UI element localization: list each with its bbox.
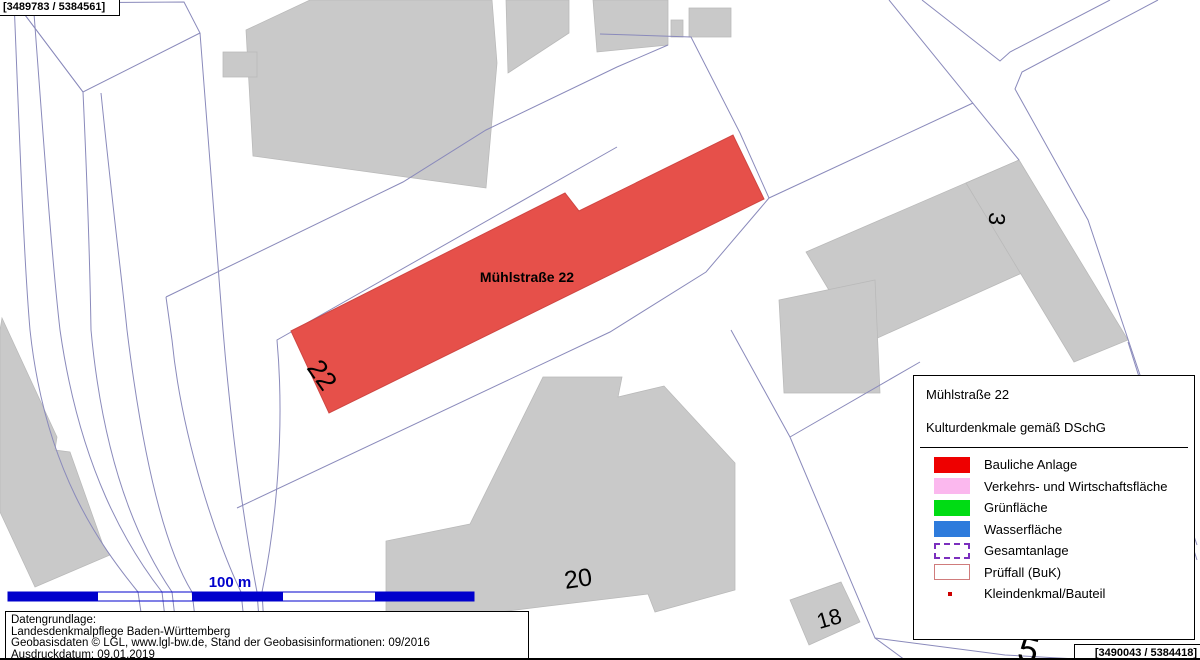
dot-swatch-icon <box>934 586 970 602</box>
legend-title: Mühlstraße 22 <box>926 387 1182 402</box>
legend-panel: Mühlstraße 22 Kulturdenkmale gemäß DSchG… <box>913 375 1195 640</box>
building-footprint-3 <box>779 280 880 393</box>
legend-item-label: Prüffall (BuK) <box>984 565 1061 580</box>
outline-swatch-icon <box>934 564 970 580</box>
building-footprint <box>506 0 569 73</box>
parcel-line <box>769 103 973 198</box>
building-footprint <box>246 0 497 188</box>
legend-item-label: Verkehrs- und Wirtschaftsfläche <box>984 479 1168 494</box>
map-printout: Mühlstraße 22 22 3 20 18 5 100 m Mühlstr… <box>0 0 1200 660</box>
building-footprint <box>223 52 257 77</box>
blue-swatch-icon <box>934 521 970 537</box>
scale-bar-segment <box>192 592 283 601</box>
legend-item-wasserflaeche: Wasserfläche <box>914 519 1194 541</box>
building-number-3: 3 <box>983 211 1010 226</box>
parcel-line <box>922 0 1110 61</box>
scale-bar-label: 100 m <box>209 574 252 591</box>
legend-item-gesamtanlage: Gesamtanlage <box>914 540 1194 562</box>
street-label: Mühlstraße 22 <box>480 269 574 285</box>
pink-swatch-icon <box>934 478 970 494</box>
parcel-line <box>101 93 200 660</box>
legend-divider <box>920 447 1188 448</box>
red-swatch-icon <box>934 457 970 473</box>
building-footprint <box>671 20 683 37</box>
legend-item-label: Bauliche Anlage <box>984 457 1077 472</box>
legend-item-label: Grünfläche <box>984 500 1048 515</box>
legend-item-gruenflaeche: Grünfläche <box>914 497 1194 519</box>
legend-subtitle: Kulturdenkmale gemäß DSchG <box>926 420 1182 435</box>
parcel-line <box>166 297 248 660</box>
legend-item-bauliche-anlage: Bauliche Anlage <box>914 454 1194 476</box>
coordinate-label-top-left: [3489783 / 5384561] <box>0 0 120 16</box>
building-footprint <box>0 318 110 587</box>
building-footprint <box>689 8 731 37</box>
source-line: Geobasisdaten © LGL, www.lgl-bw.de, Stan… <box>11 638 523 650</box>
legend-item-label: Kleindenkmal/Bauteil <box>984 586 1105 601</box>
parcel-line <box>889 0 1019 160</box>
legend-item-label: Gesamtanlage <box>984 543 1069 558</box>
legend-item-kleindenkmal: Kleindenkmal/Bauteil <box>914 583 1194 605</box>
scale-bar-segment <box>8 592 98 601</box>
scale-bar-segment <box>375 592 474 601</box>
source-line: Datengrundlage: <box>11 615 523 627</box>
data-source-box: Datengrundlage: Landesdenkmalpflege Bade… <box>5 611 529 660</box>
building-footprint <box>593 0 668 52</box>
green-swatch-icon <box>934 500 970 516</box>
legend-item-prueffall: Prüffall (BuK) <box>914 562 1194 584</box>
legend-item-label: Wasserfläche <box>984 522 1062 537</box>
dashed-outline-swatch-icon <box>934 543 970 559</box>
building-number-20: 20 <box>562 563 593 595</box>
legend-item-verkehrsflaeche: Verkehrs- und Wirtschaftsfläche <box>914 476 1194 498</box>
parcel-line <box>875 638 1095 660</box>
